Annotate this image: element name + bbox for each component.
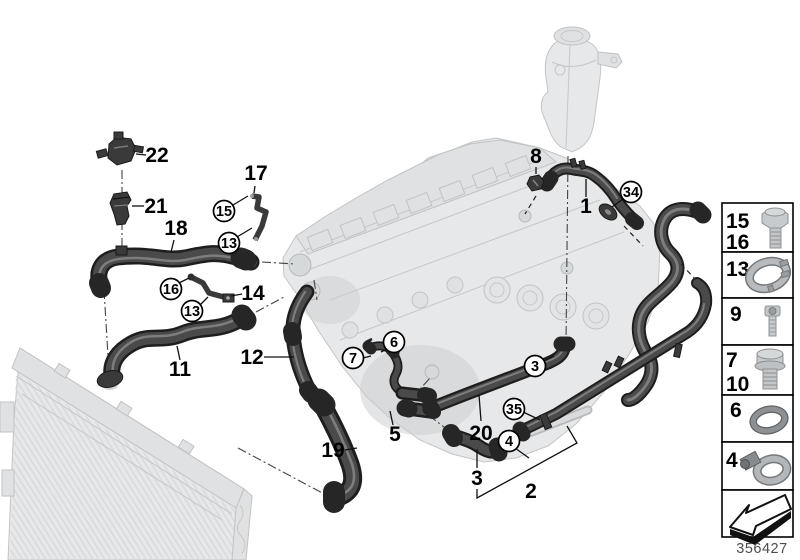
callout-17[interactable]: 17 [244, 162, 267, 185]
svg-text:2: 2 [525, 480, 537, 503]
callout-3[interactable]: 3 [471, 467, 483, 490]
callout-35-circled[interactable]: 35 [504, 399, 525, 420]
svg-text:13: 13 [184, 304, 200, 320]
svg-text:10: 10 [726, 373, 749, 396]
radiator-ghost [0, 348, 252, 560]
svg-text:16: 16 [163, 282, 179, 298]
svg-text:4: 4 [505, 434, 513, 450]
svg-text:14: 14 [241, 282, 265, 305]
svg-text:7: 7 [726, 349, 738, 372]
expansion-tank-ghost [541, 27, 622, 152]
callout-16-circled[interactable]: 16 [161, 279, 182, 300]
legend-row-arrow[interactable] [722, 490, 793, 545]
callout-1[interactable]: 1 [580, 195, 592, 218]
svg-text:22: 22 [145, 144, 168, 167]
svg-text:15: 15 [726, 210, 750, 233]
callout-2[interactable]: 2 [525, 480, 537, 503]
callout-4-circled[interactable]: 4 [499, 431, 520, 452]
svg-text:20: 20 [469, 422, 492, 445]
svg-text:1: 1 [580, 195, 592, 218]
callout-13b-circled[interactable]: 13 [182, 301, 203, 322]
svg-text:13: 13 [221, 236, 237, 252]
svg-text:3: 3 [531, 359, 539, 375]
legend-row-13[interactable]: 13 [722, 252, 795, 298]
legend-sidebar: 15 16 13 9 [722, 203, 795, 557]
svg-text:4: 4 [726, 449, 738, 472]
svg-text:21: 21 [144, 195, 168, 218]
legend-row-9[interactable]: 9 [722, 298, 793, 345]
svg-text:34: 34 [623, 185, 639, 201]
callout-6-circled[interactable]: 6 [384, 332, 405, 353]
svg-text:11: 11 [169, 358, 192, 381]
svg-text:18: 18 [164, 217, 188, 240]
svg-text:19: 19 [321, 439, 344, 462]
callout-22[interactable]: 22 [145, 144, 168, 167]
legend-row-7-10[interactable]: 7 10 [722, 345, 793, 396]
callout-8[interactable]: 8 [530, 145, 542, 168]
legend-row-15-16[interactable]: 15 16 [722, 203, 793, 254]
svg-text:35: 35 [506, 402, 522, 418]
svg-text:15: 15 [216, 204, 232, 220]
diagram-number: 356427 [736, 541, 787, 557]
bracket-17[interactable] [250, 194, 266, 241]
sensor-21[interactable] [110, 192, 131, 225]
callout-5[interactable]: 5 [389, 423, 401, 446]
callout-21[interactable]: 21 [144, 195, 168, 218]
callout-14[interactable]: 14 [241, 282, 265, 305]
callout-7-circled[interactable]: 7 [343, 348, 364, 369]
svg-text:3: 3 [471, 467, 483, 490]
callout-12[interactable]: 12 [240, 346, 263, 369]
svg-text:8: 8 [530, 145, 542, 168]
hose-18-sensor-port [116, 246, 127, 255]
svg-text:5: 5 [389, 423, 401, 446]
svg-text:17: 17 [244, 162, 267, 185]
svg-text:7: 7 [349, 351, 357, 367]
svg-text:16: 16 [726, 231, 749, 254]
callout-19[interactable]: 19 [321, 439, 344, 462]
callout-13a-circled[interactable]: 13 [219, 233, 240, 254]
callout-34-circled[interactable]: 34 [621, 182, 642, 203]
svg-text:6: 6 [730, 399, 742, 422]
callout-15-circled[interactable]: 15 [214, 201, 235, 222]
sensor-22[interactable] [96, 132, 143, 165]
callout-11[interactable]: 11 [169, 358, 192, 381]
callout-18[interactable]: 18 [164, 217, 188, 240]
bracket-14[interactable] [188, 274, 235, 303]
legend-row-6[interactable]: 6 [722, 395, 793, 442]
legend-row-4[interactable]: 4 [722, 442, 793, 490]
callout-3-circled[interactable]: 3 [525, 356, 546, 377]
svg-text:9: 9 [730, 303, 742, 326]
callout-20[interactable]: 20 [469, 422, 492, 445]
svg-text:6: 6 [390, 335, 398, 351]
cooling-hoses-parts-diagram: 22 21 18 17 14 11 12 19 5 20 3 2 8 1 15 … [0, 0, 800, 560]
svg-text:12: 12 [240, 346, 263, 369]
